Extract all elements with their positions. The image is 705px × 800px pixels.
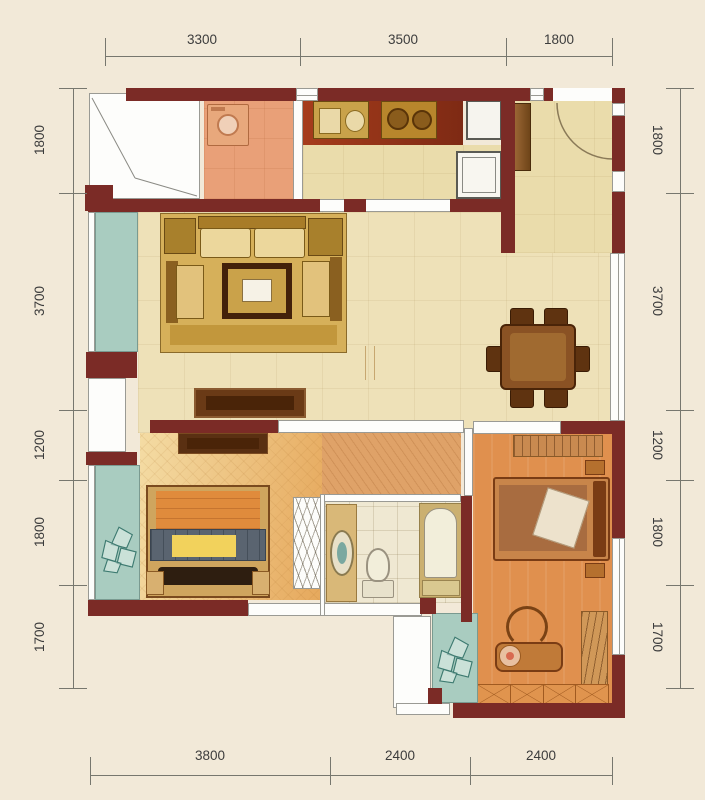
nightstand [585, 460, 605, 475]
dim-tick [59, 585, 87, 586]
dining-set [486, 308, 590, 408]
dim-tick [90, 757, 91, 785]
dim-label-bottom-3: 2400 [511, 748, 571, 764]
low-cabinet-x [477, 684, 609, 705]
wall-left-chunk-2 [86, 452, 137, 465]
window-top-kitchen [296, 88, 318, 101]
washer-drum-icon [217, 114, 239, 136]
dim-tick [612, 38, 613, 66]
plant-icon [436, 635, 474, 685]
wall-bedroom2-bath [320, 494, 325, 616]
x-panel-icon [544, 685, 577, 704]
washing-machine [207, 104, 249, 146]
dim-line-right [680, 88, 681, 688]
dining-chair [544, 388, 568, 408]
dim-label-right-5: 1700 [649, 607, 665, 667]
sofa-set [160, 213, 347, 353]
wall-bottom-master [453, 703, 625, 718]
void-area [89, 93, 200, 199]
wall-right-lower [612, 655, 625, 705]
living-window-glass [95, 212, 138, 352]
floor-plan: 3300 3500 1800 3800 2400 2400 1800 3700 … [0, 0, 705, 800]
living-passage-opening [366, 199, 450, 212]
wardrobe-master-top [513, 435, 603, 457]
x-panel-icon [511, 685, 544, 704]
dim-tick [612, 757, 613, 785]
dim-tick [105, 38, 106, 66]
dim-tick [666, 410, 694, 411]
dim-tick [59, 410, 87, 411]
dim-label-top-3: 1800 [529, 32, 589, 48]
wall-living-top-2 [344, 199, 366, 212]
floor-mark [365, 346, 366, 380]
wardrobe-master-right [581, 611, 608, 686]
wall-bottom-bedroom2 [88, 600, 248, 616]
void-diagonal-lines [90, 94, 199, 198]
dim-label-left-4: 1800 [32, 502, 48, 562]
dim-label-right-4: 1800 [649, 502, 665, 562]
utility-platform [393, 616, 431, 708]
coffee-table [222, 263, 292, 319]
wall-bath-master [461, 496, 472, 622]
dining-chair [510, 388, 534, 408]
dim-tick [300, 38, 301, 66]
dim-tick [59, 688, 87, 689]
cabinet [456, 151, 502, 199]
floor-mark [374, 346, 375, 380]
dim-tick [59, 193, 87, 194]
dim-label-left-3: 1200 [32, 415, 48, 475]
dim-label-right-1: 1800 [649, 110, 665, 170]
plant-icon [100, 525, 138, 575]
dim-line-bottom [90, 775, 612, 776]
armchair [302, 261, 330, 317]
folded-blanket [172, 535, 236, 557]
side-table [308, 218, 343, 256]
dim-label-left-1: 1800 [32, 110, 48, 170]
window-frame [88, 212, 95, 352]
sofa-cushion [200, 228, 251, 258]
tv-cabinet-living [194, 388, 306, 418]
dim-label-left-2: 3700 [32, 271, 48, 331]
wall-balcony-corner-2 [428, 688, 442, 704]
dim-tick [59, 480, 87, 481]
bathtub [419, 503, 462, 598]
nightstand [252, 571, 270, 595]
wall-living-bedroom2 [150, 420, 278, 433]
dining-window [610, 253, 625, 421]
armchair-back [330, 257, 342, 321]
window-frame [88, 465, 95, 600]
fridge [466, 100, 502, 140]
wall-bottom-bath [248, 603, 422, 616]
side-table [164, 218, 196, 254]
wall-living-top [88, 199, 320, 212]
entry-door-swing-icon [553, 100, 615, 164]
shoe-cabinet [514, 103, 531, 171]
bed-bedroom2 [146, 485, 270, 598]
window-right-small [612, 103, 625, 116]
wardrobe-bedroom2 [293, 497, 321, 589]
kitchen-sink [313, 101, 369, 139]
headboard [593, 481, 606, 557]
entry-door-opening [553, 88, 612, 101]
burner-icon [412, 110, 432, 130]
wall-master-top [561, 421, 612, 434]
dining-table [500, 324, 576, 390]
tub-step [422, 580, 460, 596]
dim-tick [506, 38, 507, 66]
pillow-bar [158, 567, 258, 585]
dim-label-right-3: 1200 [649, 415, 665, 475]
sink-basin [330, 530, 354, 576]
dim-tick [666, 688, 694, 689]
nightstand [146, 571, 164, 595]
dim-line-top [105, 56, 612, 57]
kitchen-passage-opening [320, 199, 344, 212]
wall-bath-top [322, 494, 461, 502]
dim-label-bottom-1: 3800 [180, 748, 240, 764]
dim-label-left-5: 1700 [32, 607, 48, 667]
platform-edge [396, 703, 450, 715]
window-right-small [612, 171, 625, 192]
dim-line-left [73, 88, 74, 688]
dim-label-bottom-2: 2400 [370, 748, 430, 764]
dim-label-top-2: 3500 [373, 32, 433, 48]
bay-platform [88, 378, 126, 452]
tv-cabinet-bedroom2 [178, 433, 268, 454]
bed-master [493, 477, 610, 561]
wall-kitchen-entry [501, 95, 515, 253]
dim-label-top-1: 3300 [172, 32, 232, 48]
window-top-entry [530, 88, 544, 101]
bedroom2-door-opening [278, 420, 464, 433]
burner-icon [387, 108, 409, 130]
dim-tick [666, 88, 694, 89]
kitchen-door [293, 101, 303, 199]
wall-left-chunk [86, 352, 137, 378]
dim-label-right-2: 3700 [649, 271, 665, 331]
flower-icon [499, 645, 521, 667]
x-panel-icon [478, 685, 511, 704]
master-window [612, 538, 625, 655]
wall-right-master [612, 421, 625, 538]
x-panel-icon [576, 685, 608, 704]
wall-master-top-thin [473, 421, 561, 434]
dim-tick [59, 88, 87, 89]
wall-living-top-3 [450, 199, 501, 212]
dim-tick [666, 585, 694, 586]
dim-tick [666, 480, 694, 481]
toilet-bowl [366, 548, 390, 582]
sofa-cushion [254, 228, 305, 258]
dim-tick [666, 193, 694, 194]
armchair [176, 265, 204, 319]
nightstand [585, 563, 605, 578]
toilet-tank [362, 580, 394, 598]
dim-tick [330, 757, 331, 785]
wall-balcony-corner [420, 598, 436, 614]
stove [381, 101, 437, 139]
dim-tick [470, 757, 471, 785]
hallway-floor [322, 433, 461, 496]
wall-hall-master [464, 428, 473, 496]
